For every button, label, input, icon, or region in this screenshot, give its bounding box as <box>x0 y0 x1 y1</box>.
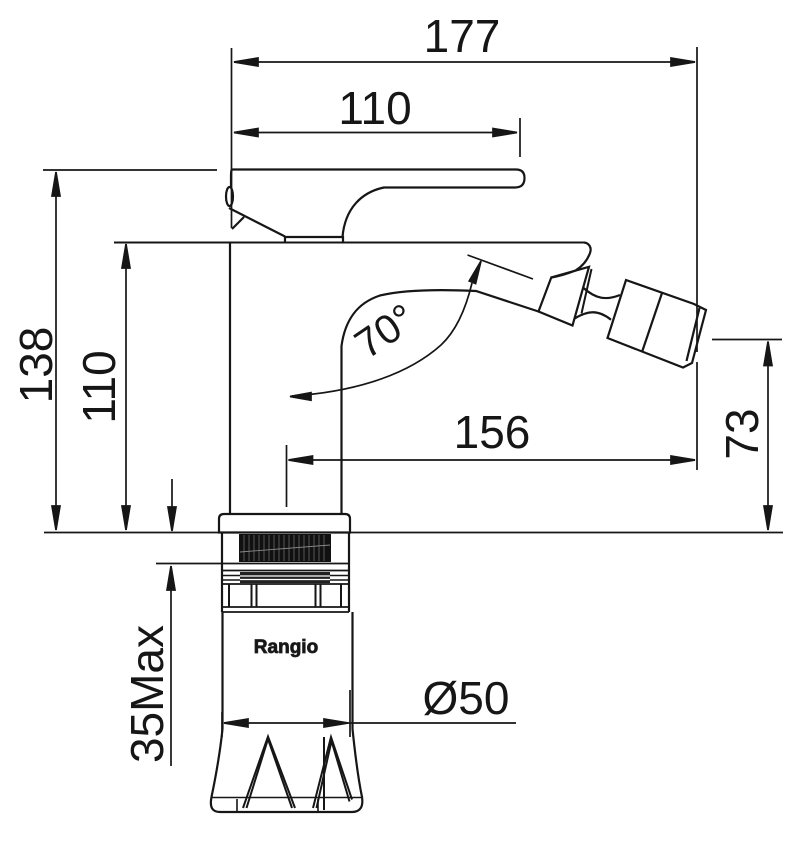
svg-text:110: 110 <box>73 350 125 423</box>
svg-text:138: 138 <box>10 327 62 404</box>
svg-text:177: 177 <box>424 10 501 62</box>
svg-text:70°: 70° <box>346 295 423 368</box>
svg-text:Rangio: Rangio <box>254 637 318 658</box>
svg-text:110: 110 <box>338 82 411 134</box>
svg-text:Ø50: Ø50 <box>423 672 510 724</box>
svg-text:35Max: 35Max <box>121 625 173 763</box>
svg-text:73: 73 <box>716 408 768 459</box>
svg-text:156: 156 <box>454 406 531 458</box>
